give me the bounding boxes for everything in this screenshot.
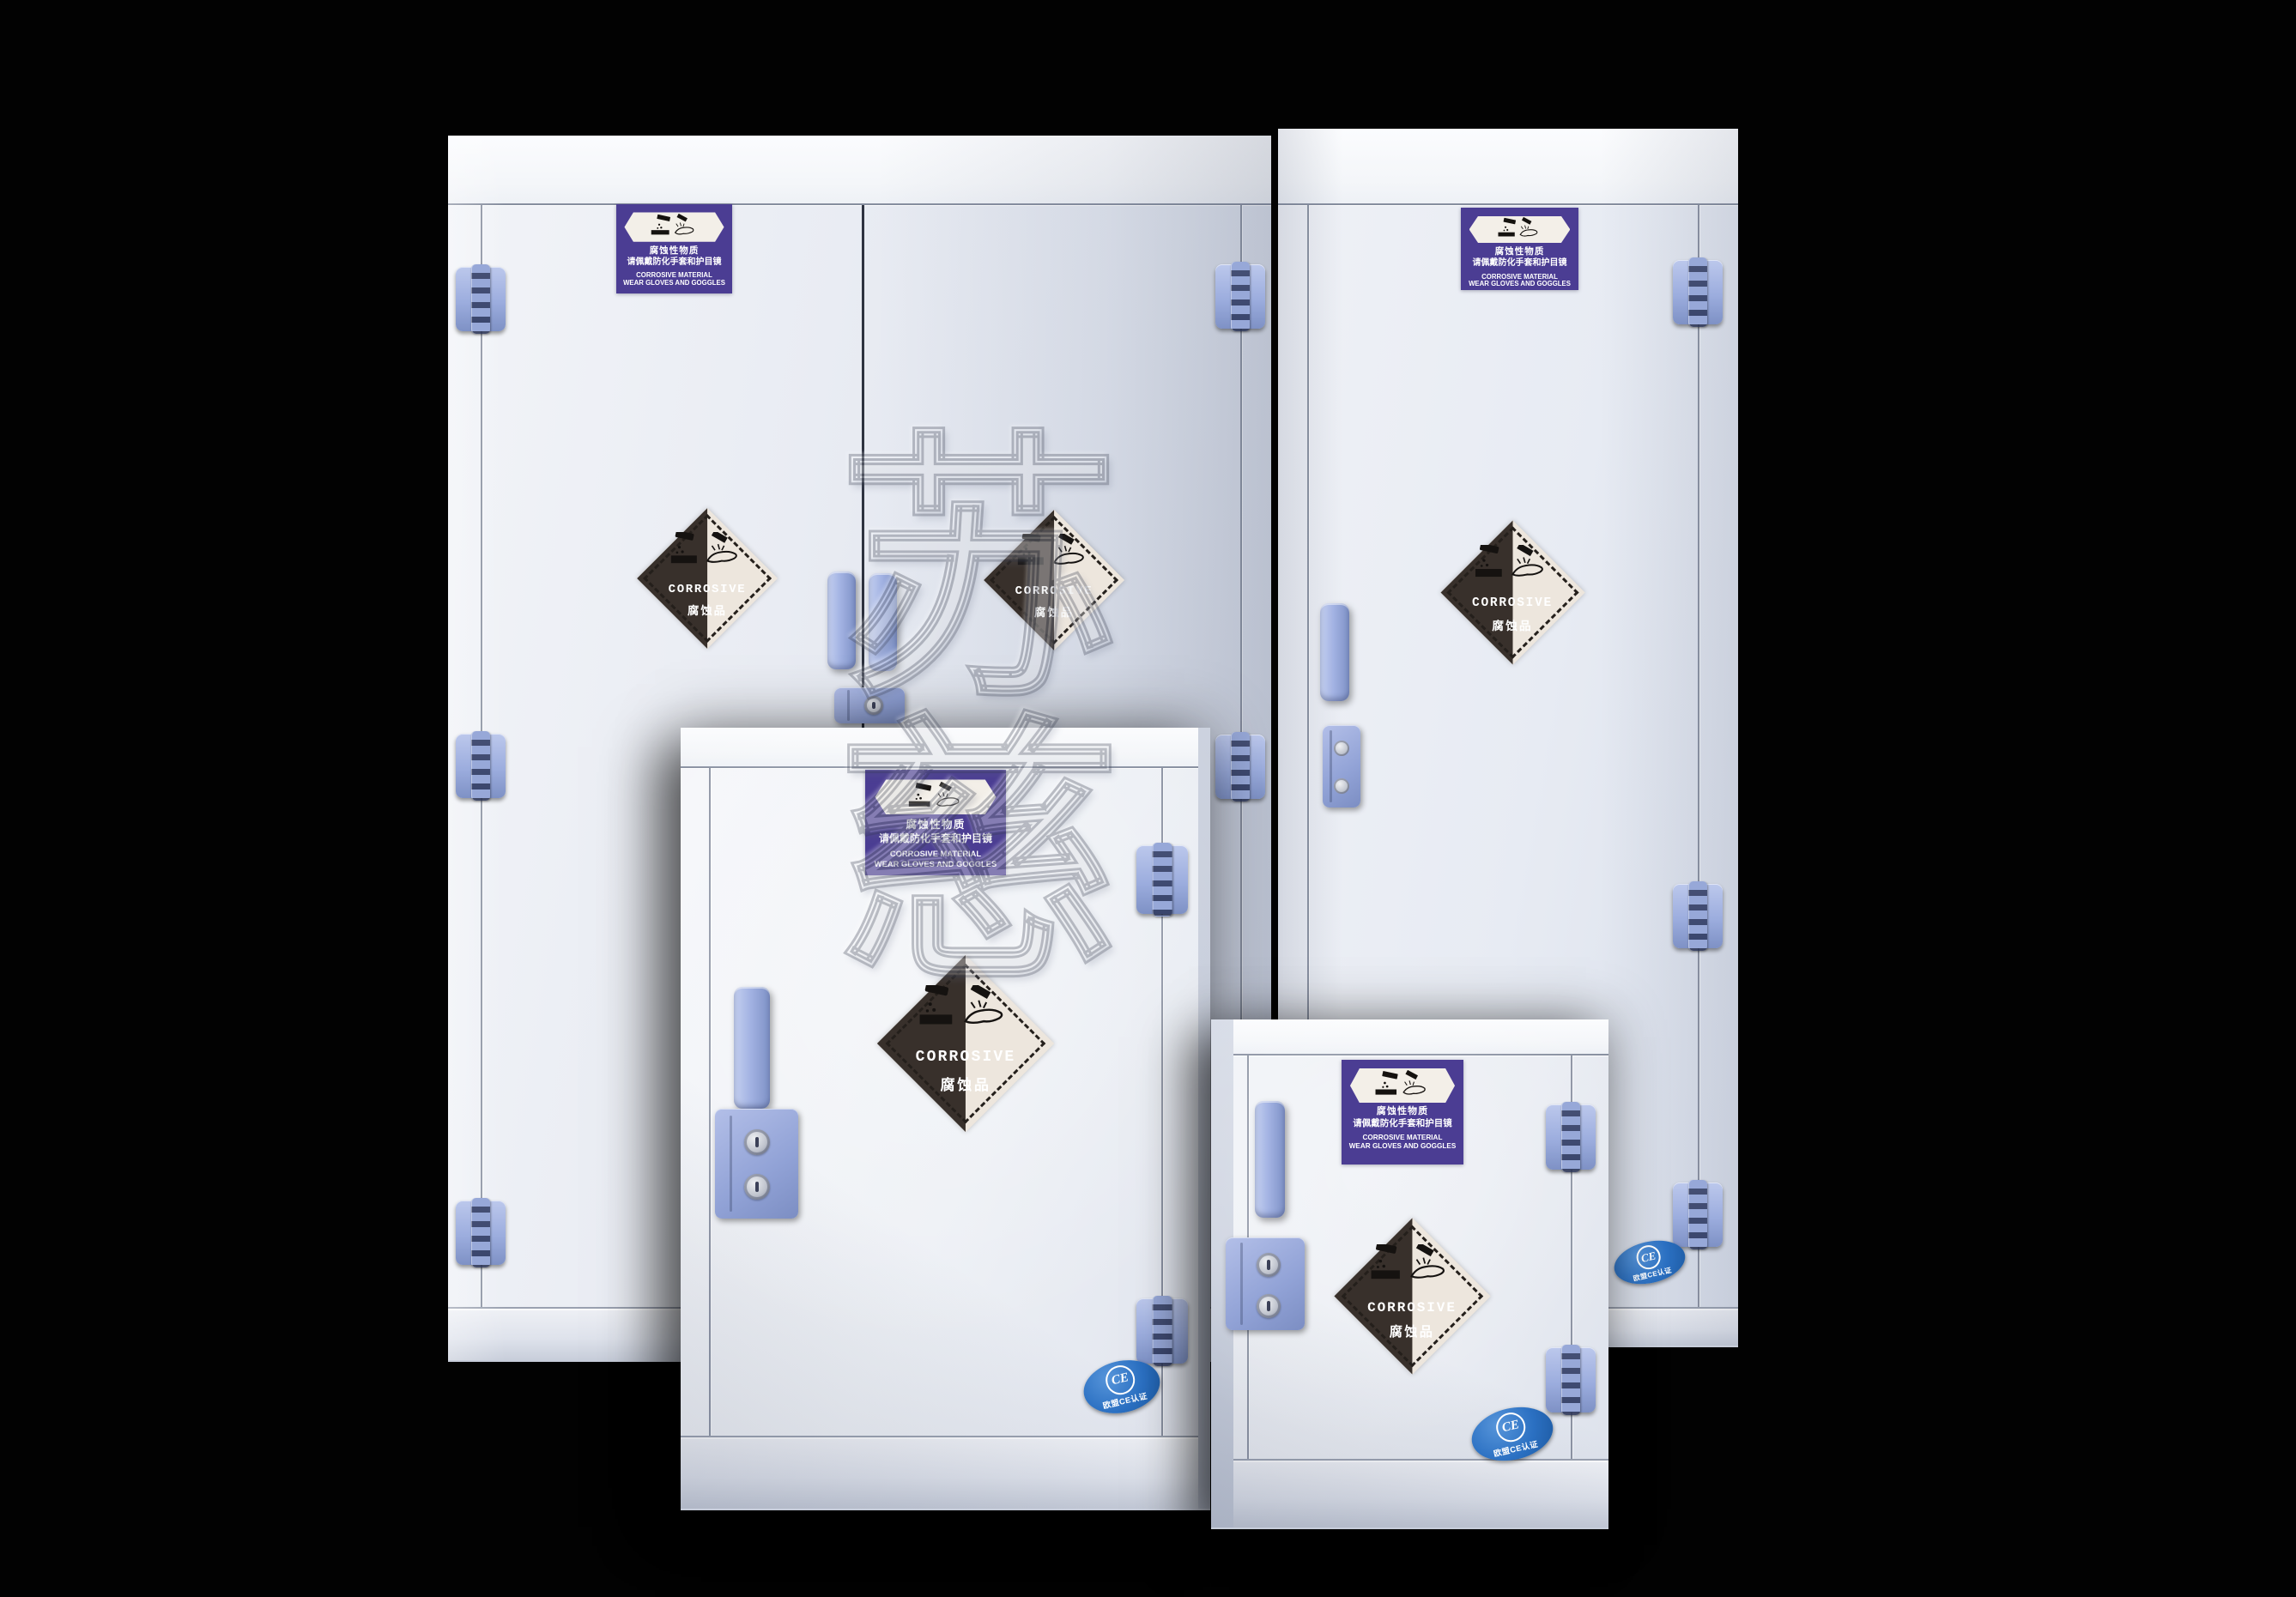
cabinet-side-panel [1198, 728, 1210, 1509]
corrosive-pictogram-icon [1012, 534, 1096, 573]
door-hinge [1546, 1347, 1596, 1412]
corrosive-pictogram-icon [665, 532, 749, 572]
warning-line4-en: WEAR GLOVES AND GOGGLES [616, 280, 732, 287]
corrosive-warning-label: 腐蚀性物质 请佩戴防化手套和护目镜 CORROSIVE MATERIAL WEA… [616, 204, 732, 293]
corrosive-diamond-placard: CORROSIVE 腐蚀品 [877, 955, 1054, 1132]
door-hinge [1673, 1183, 1723, 1247]
hinge-pin [1688, 1180, 1707, 1249]
corrosive-diamond-placard: CORROSIVE 腐蚀品 [1440, 520, 1584, 664]
hinge-pin [1153, 843, 1172, 916]
corrosive-diamond-placard: CORROSIVE 腐蚀品 [1334, 1218, 1490, 1374]
diamond-title-en: CORROSIVE [637, 583, 778, 596]
door-hinge [1136, 1298, 1188, 1364]
right-door-edge [1698, 205, 1699, 1307]
corrosive-diamond-placard: CORROSIVE 腐蚀品 [637, 508, 778, 649]
warning-line1-zh: 腐蚀性物质 [1342, 1106, 1463, 1118]
door-handle [734, 987, 770, 1109]
warning-line1-zh: 腐蚀性物质 [865, 819, 1006, 832]
top-groove [1211, 1054, 1608, 1056]
corrosive-pictogram-icon [1365, 1244, 1458, 1288]
diamond-title-zh: 腐蚀品 [637, 602, 778, 618]
door-handle [869, 573, 897, 671]
corrosive-pictogram-icon [912, 985, 1019, 1035]
corrosive-pictogram-icon [1360, 1070, 1445, 1100]
door-hinge [1136, 845, 1188, 914]
door-hinge [1215, 264, 1265, 329]
cabinet-top-rail [1211, 1019, 1608, 1054]
door-handle [1255, 1101, 1285, 1218]
corrosive-warning-label: 腐蚀性物质 请佩戴防化手套和护目镜 CORROSIVE MATERIAL WEA… [865, 770, 1006, 875]
hazard-pictogram-panel [624, 212, 724, 241]
diamond-face [1334, 1218, 1490, 1374]
diamond-title-zh: 腐蚀品 [1334, 1322, 1490, 1340]
warning-line4-en: WEAR GLOVES AND GOGGLES [865, 860, 1006, 868]
medium-single-door-cabinet: 腐蚀性物质 请佩戴防化手套和护目镜 CORROSIVE MATERIAL WEA… [681, 728, 1210, 1509]
hinge-pin [1561, 1345, 1580, 1415]
corrosive-warning-label: 腐蚀性物质 请佩戴防化手套和护目镜 CORROSIVE MATERIAL WEA… [1342, 1060, 1463, 1164]
door-hinge [1673, 260, 1723, 324]
diamond-title-en: CORROSIVE [1440, 596, 1584, 610]
door-hinge [1546, 1104, 1596, 1170]
product-photo: 腐蚀性物质 请佩戴防化手套和护目镜 CORROSIVE MATERIAL WEA… [0, 0, 2296, 1597]
lock-screw [1334, 741, 1349, 756]
door-hinge [1215, 735, 1265, 799]
hinge-pin [471, 731, 490, 801]
hinge-pin [1153, 1296, 1172, 1366]
corrosive-warning-label: 腐蚀性物质 请佩戴防化手套和护目镜 CORROSIVE MATERIAL WEA… [1461, 208, 1578, 290]
corrosive-pictogram-icon [1469, 545, 1556, 585]
hinge-pin [1231, 732, 1250, 802]
cabinet-bottom-rail [681, 1436, 1210, 1510]
corrosive-pictogram-icon [888, 782, 984, 813]
cabinet-bottom-rail [1211, 1459, 1608, 1529]
door-hinge [456, 734, 506, 798]
door-lock [834, 687, 905, 723]
door-lock [1323, 725, 1360, 808]
hazard-pictogram-panel [875, 779, 996, 814]
hazard-pictogram-panel [1469, 216, 1571, 244]
cabinet-top-rail [1278, 129, 1738, 203]
diamond-title-zh: 腐蚀品 [1440, 616, 1584, 633]
hinge-pin [1561, 1102, 1580, 1172]
diamond-title-en: CORROSIVE [1334, 1300, 1490, 1316]
warning-line2-zh: 请佩戴防化手套和护目镜 [1461, 257, 1578, 269]
hinge-pin [1688, 257, 1707, 327]
warning-line1-zh: 腐蚀性物质 [616, 245, 732, 257]
warning-line3-en: CORROSIVE MATERIAL [865, 850, 1006, 860]
warning-line2-zh: 请佩戴防化手套和护目镜 [865, 832, 1006, 846]
hinge-pin [471, 1198, 490, 1267]
warning-line4-en: WEAR GLOVES AND GOGGLES [1461, 281, 1578, 288]
cabinet-top-rail [681, 728, 1210, 766]
hazard-pictogram-panel [1350, 1068, 1455, 1103]
corrosive-pictogram-icon [1479, 217, 1560, 241]
top-groove [448, 203, 1271, 205]
diamond-title-zh: 腐蚀品 [877, 1073, 1054, 1094]
hinge-pin [1688, 881, 1707, 951]
diamond-face [637, 508, 778, 649]
door-lock [715, 1109, 798, 1219]
top-groove [1278, 203, 1738, 205]
diamond-face [1440, 520, 1584, 664]
diamond-face [877, 955, 1054, 1132]
door-hinge [1673, 884, 1723, 948]
keyhole [1257, 1253, 1281, 1277]
keyhole [864, 696, 883, 715]
warning-line3-en: CORROSIVE MATERIAL [1342, 1134, 1463, 1142]
warning-line4-en: WEAR GLOVES AND GOGGLES [1342, 1142, 1463, 1150]
diamond-title-zh: 腐蚀品 [984, 603, 1124, 620]
corrosive-diamond-placard: CORROSIVE 腐蚀品 [984, 510, 1124, 650]
keyhole [1257, 1294, 1281, 1318]
keyhole [744, 1129, 770, 1155]
door-hinge [456, 1201, 506, 1265]
diamond-face [984, 510, 1124, 650]
warning-line2-zh: 请佩戴防化手套和护目镜 [616, 257, 732, 268]
door-handle [1320, 603, 1349, 701]
left-door-edge [709, 768, 711, 1436]
top-groove [681, 766, 1210, 768]
door-hinge [456, 267, 506, 331]
diamond-title-en: CORROSIVE [877, 1049, 1054, 1066]
lock-screw [1334, 778, 1349, 794]
small-single-door-cabinet: 腐蚀性物质 请佩戴防化手套和护目镜 CORROSIVE MATERIAL WEA… [1211, 1019, 1608, 1527]
cabinet-top-rail [448, 136, 1271, 203]
door-handle [827, 572, 856, 669]
corrosive-pictogram-icon [634, 214, 714, 239]
diamond-title-en: CORROSIVE [984, 584, 1124, 598]
warning-line2-zh: 请佩戴防化手套和护目镜 [1342, 1118, 1463, 1130]
door-lock [1226, 1237, 1305, 1330]
hinge-pin [1231, 262, 1250, 331]
keyhole [744, 1174, 770, 1200]
hinge-pin [471, 264, 490, 334]
warning-line1-zh: 腐蚀性物质 [1461, 246, 1578, 257]
